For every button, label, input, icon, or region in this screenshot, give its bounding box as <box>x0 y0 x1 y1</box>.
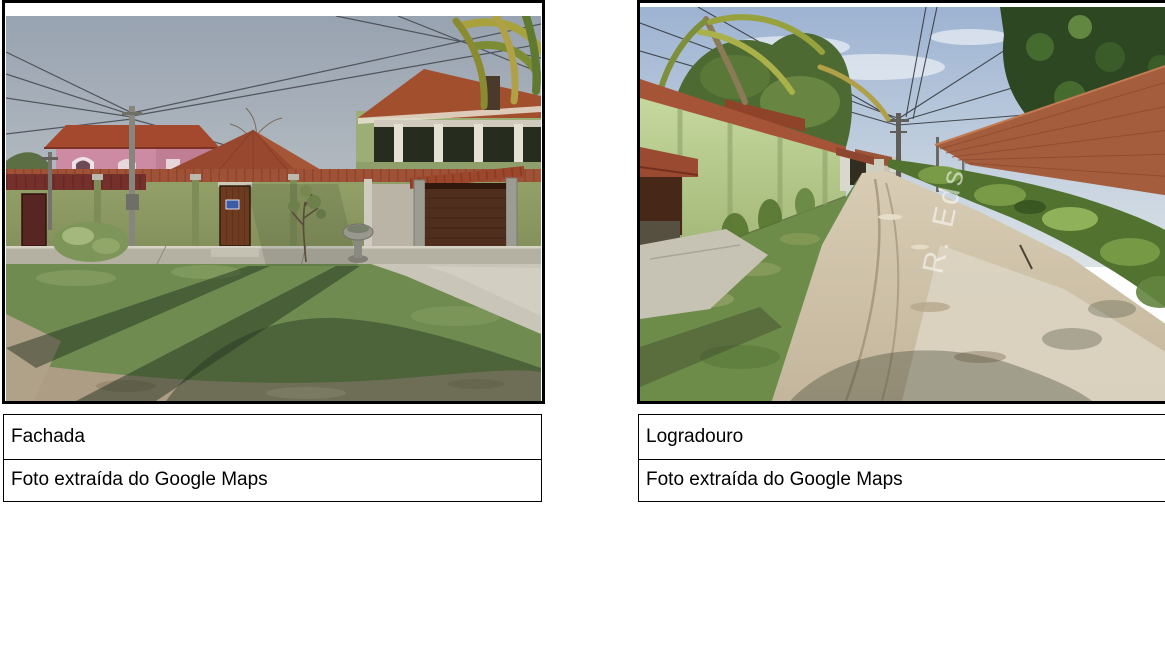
logradouro-photo: R. Eds <box>640 7 1165 401</box>
fachada-photo-wrap <box>5 3 542 401</box>
facade-garage <box>410 166 524 250</box>
photo-caption-title: Fachada <box>4 415 541 460</box>
logradouro-panel: R. Eds <box>637 0 1165 502</box>
photo-caption-source: Foto extraída do Google Maps <box>639 460 1165 501</box>
fachada-photo <box>6 16 541 401</box>
fachada-photo-frame <box>2 0 545 404</box>
fachada-caption-table: Fachada Foto extraída do Google Maps <box>3 414 542 502</box>
fachada-panel: Fachada Foto extraída do Google Maps <box>2 0 545 502</box>
facade-left-gate <box>22 194 46 246</box>
logradouro-caption-table: Logradouro Foto extraída do Google Maps <box>638 414 1165 502</box>
facade-driveway-opening <box>368 184 414 248</box>
photo-caption-title: Logradouro <box>639 415 1165 460</box>
facade-bush <box>53 222 129 262</box>
photo-caption-source: Foto extraída do Google Maps <box>4 460 541 501</box>
logradouro-photo-frame: R. Eds <box>637 0 1165 404</box>
facade-front-door <box>218 182 252 246</box>
logradouro-photo-wrap: R. Eds <box>640 3 1165 401</box>
